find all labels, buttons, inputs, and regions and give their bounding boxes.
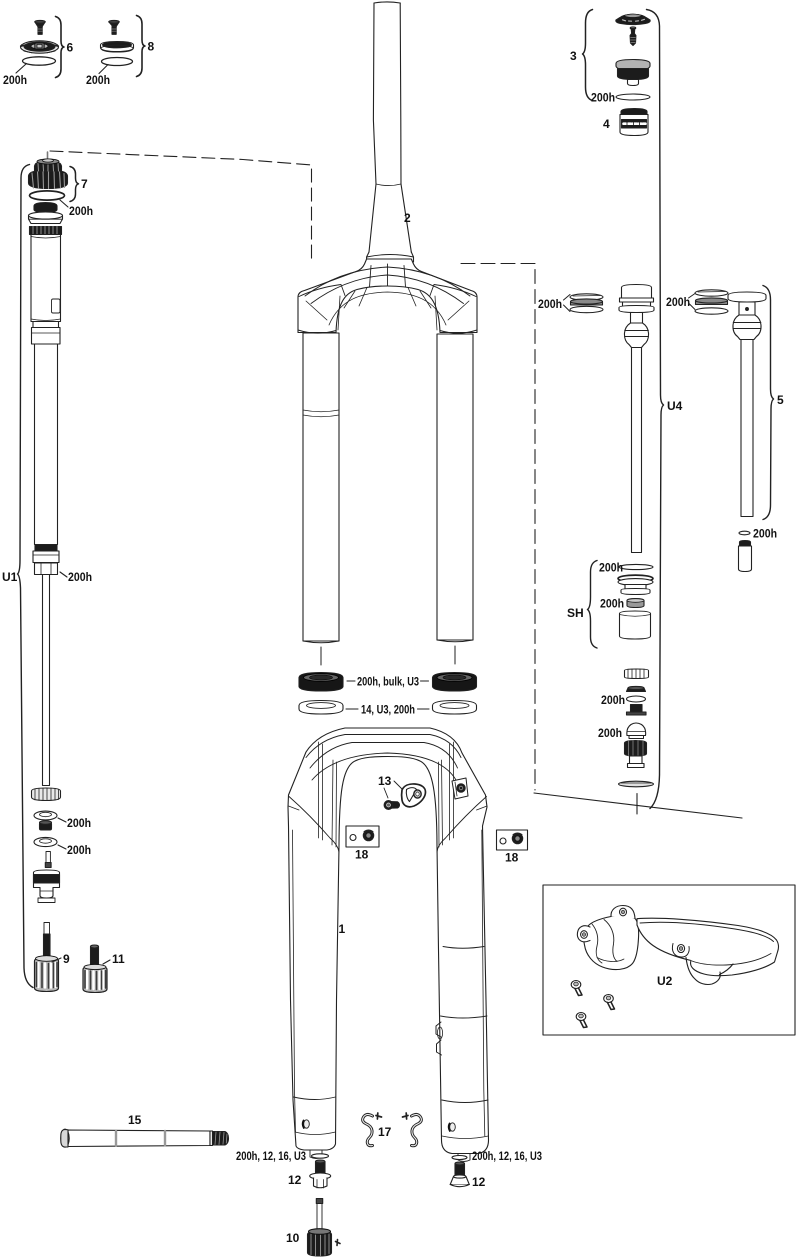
svg-text:200h: 200h	[591, 91, 615, 105]
svg-text:7: 7	[81, 177, 88, 191]
svg-text:2: 2	[404, 211, 411, 225]
svg-text:10: 10	[286, 1231, 300, 1245]
svg-text:1: 1	[339, 922, 346, 936]
svg-text:200h: 200h	[753, 527, 777, 541]
svg-text:SH: SH	[567, 606, 584, 620]
svg-text:15: 15	[128, 1113, 142, 1127]
svg-text:8: 8	[148, 40, 155, 54]
svg-text:200h: 200h	[538, 297, 562, 311]
svg-text:11: 11	[112, 952, 125, 966]
svg-text:200h: 200h	[666, 295, 690, 309]
svg-text:200h: 200h	[67, 816, 91, 830]
svg-text:U4: U4	[667, 399, 683, 413]
svg-text:200h, bulk, U3: 200h, bulk, U3	[357, 677, 419, 689]
svg-text:4: 4	[603, 117, 610, 131]
svg-text:12: 12	[472, 1175, 486, 1189]
svg-text:200h, 12, 16, U3: 200h, 12, 16, U3	[472, 1151, 542, 1163]
svg-text:3: 3	[570, 49, 577, 63]
svg-text:17: 17	[378, 1125, 392, 1139]
svg-text:200h: 200h	[601, 693, 625, 707]
svg-text:U1: U1	[2, 570, 18, 584]
svg-text:U2: U2	[657, 974, 673, 988]
svg-text:200h, 12, 16, U3: 200h, 12, 16, U3	[236, 1151, 306, 1163]
svg-text:200h: 200h	[86, 73, 110, 87]
svg-text:200h: 200h	[599, 561, 623, 575]
svg-text:200h: 200h	[598, 726, 622, 740]
svg-text:14, U3, 200h: 14, U3, 200h	[361, 705, 415, 717]
svg-text:200h: 200h	[600, 597, 624, 611]
svg-text:200h: 200h	[3, 73, 27, 87]
svg-text:18: 18	[355, 848, 369, 862]
svg-text:6: 6	[67, 41, 74, 55]
svg-text:200h: 200h	[68, 570, 92, 584]
svg-text:12: 12	[288, 1173, 302, 1187]
svg-text:5: 5	[777, 393, 784, 407]
svg-text:13: 13	[378, 774, 392, 788]
svg-text:200h: 200h	[69, 204, 93, 218]
svg-text:18: 18	[505, 851, 519, 865]
svg-text:200h: 200h	[67, 843, 91, 857]
svg-text:9: 9	[63, 952, 70, 966]
